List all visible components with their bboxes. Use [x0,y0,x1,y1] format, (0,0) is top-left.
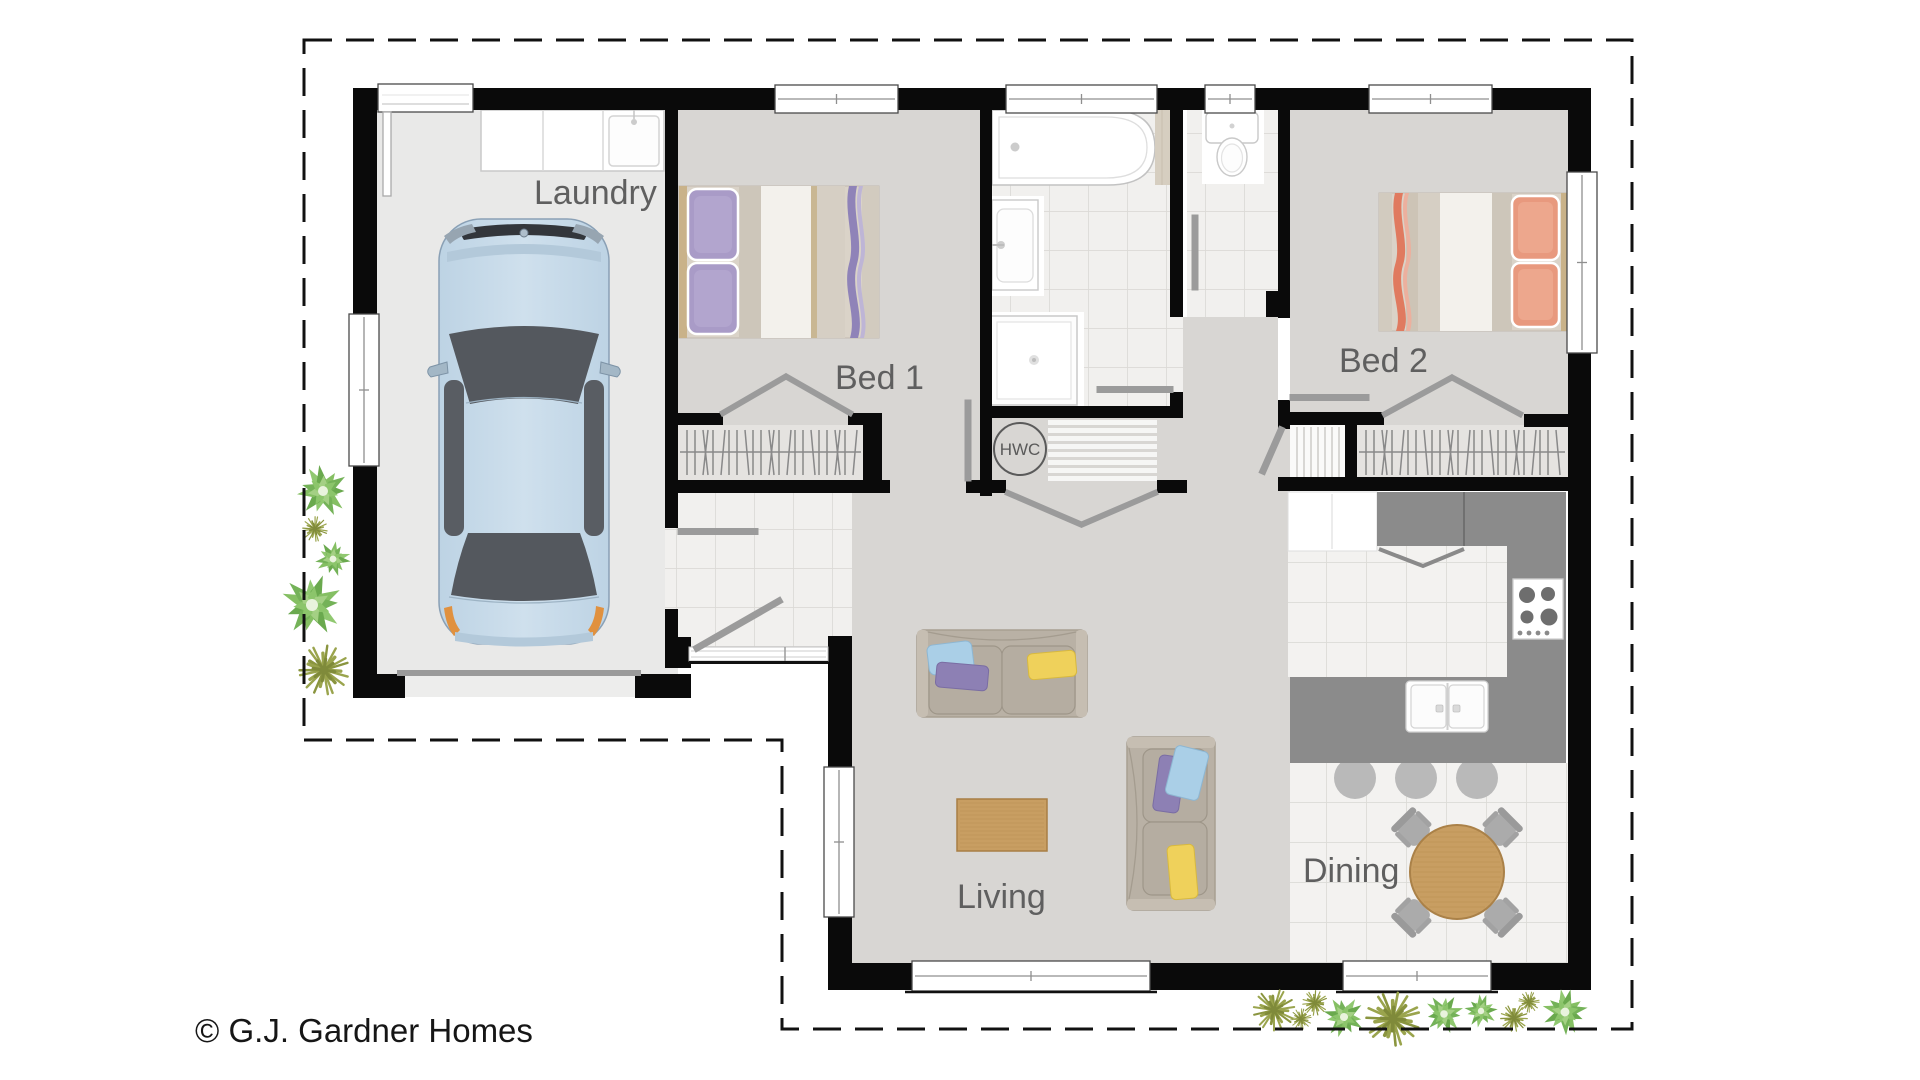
svg-text:Living: Living [957,878,1046,916]
svg-text:Bed 2: Bed 2 [1339,342,1428,380]
svg-text:Bed 1: Bed 1 [835,359,924,397]
svg-text:© G.J. Gardner Homes: © G.J. Gardner Homes [195,1012,533,1049]
svg-text:HWC: HWC [1000,440,1041,459]
svg-text:Laundry: Laundry [534,174,657,212]
svg-text:Dining: Dining [1303,852,1399,890]
